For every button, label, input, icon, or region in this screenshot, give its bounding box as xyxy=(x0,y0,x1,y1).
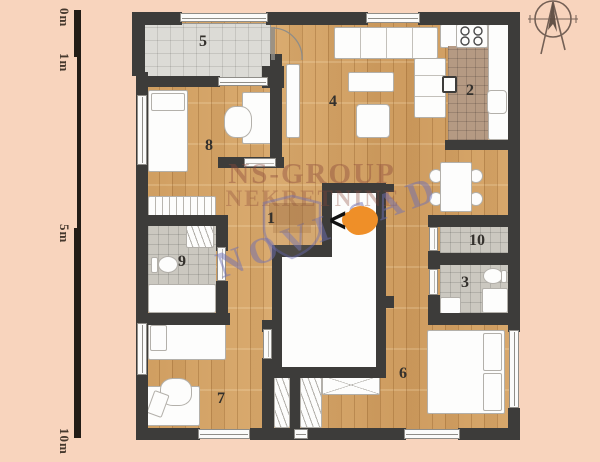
ruler-label-0m: 0m xyxy=(56,8,72,27)
wall xyxy=(458,428,520,440)
room-label-9: 9 xyxy=(178,253,186,271)
wall xyxy=(136,215,228,226)
room-label-10: 10 xyxy=(469,232,485,250)
north-compass-icon xyxy=(524,0,586,62)
room-label-3: 3 xyxy=(461,274,469,292)
room-label-4: 4 xyxy=(329,93,337,111)
window-icon xyxy=(198,429,250,439)
ruler-segment xyxy=(77,57,81,228)
room-label-1: 1 xyxy=(267,210,275,228)
door-icon xyxy=(429,269,438,295)
balcony-floor xyxy=(143,23,271,81)
wall xyxy=(428,313,520,325)
window-icon xyxy=(180,13,268,22)
wall xyxy=(428,215,520,227)
wall xyxy=(418,12,520,25)
shower-icon xyxy=(482,288,508,313)
wall xyxy=(216,215,228,251)
dining-table-icon xyxy=(440,162,472,212)
closet-icon xyxy=(300,375,322,428)
wall xyxy=(428,253,520,265)
coffee-table-icon xyxy=(348,72,394,92)
ruler-label-5m: 5m xyxy=(56,224,72,243)
wall xyxy=(136,76,220,87)
stove-burners-icon xyxy=(456,24,488,48)
wall xyxy=(290,375,300,430)
kitchen-counter-icon xyxy=(488,24,510,140)
window-icon xyxy=(404,429,460,439)
wall xyxy=(386,296,394,308)
ruler-segment xyxy=(74,10,81,57)
wall xyxy=(132,12,145,76)
ruler-label-1m: 1m xyxy=(56,53,72,72)
window-icon xyxy=(294,429,308,439)
wall xyxy=(445,140,518,150)
pillow-icon xyxy=(483,373,502,411)
kitchen-sink-icon xyxy=(487,90,507,114)
stairwell-area xyxy=(282,257,376,367)
room-label-5: 5 xyxy=(199,33,207,51)
room-label-6: 6 xyxy=(399,365,407,383)
wall xyxy=(376,183,386,378)
pillow-icon xyxy=(151,93,185,111)
closet-icon xyxy=(274,375,290,428)
chair-icon xyxy=(224,106,252,138)
room-label-7: 7 xyxy=(217,390,225,408)
window-icon xyxy=(509,330,519,408)
wall xyxy=(272,257,282,369)
toilet-icon xyxy=(483,268,503,284)
bathtub-icon xyxy=(148,284,216,313)
washing-machine-icon xyxy=(186,225,214,248)
window-icon xyxy=(218,77,268,86)
door-icon xyxy=(268,22,308,64)
door-icon xyxy=(217,247,226,281)
shelf-icon xyxy=(286,64,300,138)
room-label-2: 2 xyxy=(466,82,474,100)
toilet-icon xyxy=(158,256,178,273)
door-icon xyxy=(244,158,276,167)
armchair-icon xyxy=(356,104,390,138)
room-label-8: 8 xyxy=(205,137,213,155)
window-icon xyxy=(137,95,147,165)
toilet-icon xyxy=(151,257,158,273)
door-icon xyxy=(429,227,438,251)
sofa-icon xyxy=(334,27,438,59)
window-icon xyxy=(137,323,147,375)
ruler-label-10m: 10m xyxy=(56,428,72,455)
entrance-arrow-icon: < xyxy=(328,201,348,239)
door-icon xyxy=(263,329,272,359)
window-icon xyxy=(366,13,420,23)
ruler-segment xyxy=(74,228,81,438)
wall xyxy=(508,12,520,332)
wall xyxy=(386,184,394,192)
pillow-icon xyxy=(483,333,502,371)
floor-plan-image: 0m 1m 5m 10m xyxy=(0,0,600,462)
bathroom-sink-icon xyxy=(440,297,461,314)
wall xyxy=(136,313,230,325)
pillow-icon xyxy=(150,325,167,351)
kitchen-appliance-icon xyxy=(442,76,457,93)
toilet-icon xyxy=(501,270,507,283)
wall xyxy=(270,54,282,160)
wardrobe-icon xyxy=(322,375,380,395)
